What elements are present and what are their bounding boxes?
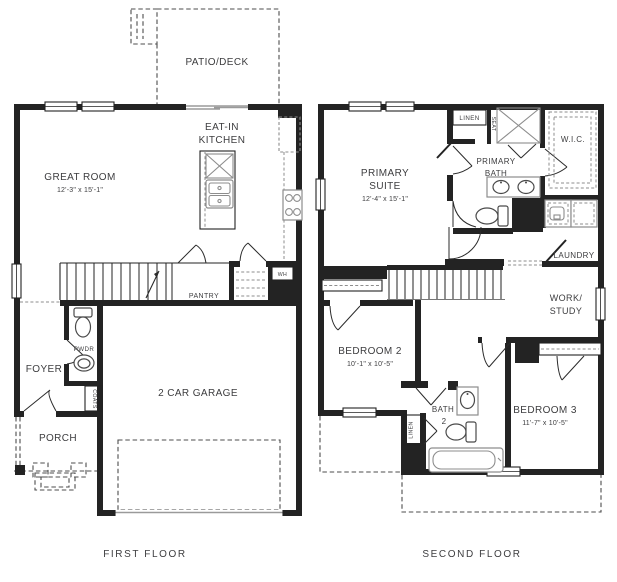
porch-outline (14, 417, 97, 490)
bedroom2-label: BEDROOM 2 (338, 346, 402, 357)
double-vanity-icon (487, 177, 540, 197)
floor-plan-drawing: PATIO/DECK EAT-IN KITCHEN GREAT ROOM 12'… (0, 0, 617, 582)
stairwell-open-rail (322, 280, 382, 291)
primary-bath-label-line1: PRIMARY (476, 157, 515, 166)
work-study-label-line2: STUDY (550, 306, 583, 316)
shower-icon (497, 108, 540, 158)
great-room-label: GREAT ROOM (44, 172, 115, 183)
eat-in-kitchen-label-line2: KITCHEN (199, 135, 246, 146)
sink-icon (74, 355, 94, 371)
bedroom2-dimensions: 10'-1" x 10'-5" (347, 361, 393, 368)
kitchen-sink-icon (206, 180, 233, 208)
garage-parking-outline (115, 440, 283, 516)
coats-label: COATS (91, 389, 97, 409)
porch-label: PORCH (39, 433, 77, 444)
bedroom3-closet-shelf (539, 343, 601, 355)
wic-label: W.I.C. (561, 135, 585, 144)
eat-in-kitchen-label-line1: EAT-IN (205, 122, 239, 133)
powder-room-label: PWDR (74, 346, 95, 353)
stove-icon (283, 190, 302, 220)
primary-suite-label-line1: PRIMARY (361, 168, 409, 179)
dryer-icon (571, 200, 597, 227)
second-floor-plan: PRIMARY SUITE 12'-4" x 15'-1" LINEN SEAT… (316, 102, 605, 560)
first-floor-windows (12, 102, 114, 298)
toilet-icon (476, 206, 508, 226)
garage-label: 2 CAR GARAGE (158, 388, 238, 399)
linen-hall-label: LINEN (409, 421, 415, 438)
pantry-label: PANTRY (189, 293, 219, 300)
sink-icon (457, 387, 478, 415)
first-floor-title: FIRST FLOOR (103, 549, 187, 560)
laundry-fixtures (545, 200, 597, 227)
bathtub-icon (429, 448, 503, 472)
toilet-icon (446, 422, 476, 442)
foyer-label: FOYER (26, 364, 62, 375)
primary-bath-label-line2: BATH (485, 169, 507, 178)
bedroom3-dimensions: 11'-7" x 10'-5" (522, 420, 568, 427)
wic-shelving (549, 112, 596, 188)
bath2-fixtures (429, 387, 503, 472)
work-study-label-line1: WORK/ (550, 293, 583, 303)
bath2-label-line2: 2 (442, 417, 447, 426)
floor-plan-page: PATIO/DECK EAT-IN KITCHEN GREAT ROOM 12'… (0, 0, 617, 582)
linen-upper-label: LINEN (459, 115, 479, 122)
bath2-label-line1: BATH (432, 405, 454, 414)
great-room-dimensions: 12'-3" x 15'-1" (57, 187, 103, 194)
washer-icon (545, 200, 571, 227)
powder-room-fixtures (74, 308, 94, 371)
patio-deck-label: PATIO/DECK (185, 57, 248, 68)
first-floor-walls (14, 104, 302, 516)
kitchen-island (200, 151, 235, 229)
first-floor-plan: PATIO/DECK EAT-IN KITCHEN GREAT ROOM 12'… (12, 9, 302, 560)
bedroom3-label: BEDROOM 3 (513, 405, 577, 416)
water-heater-label: WH (278, 272, 287, 278)
laundry-label: LAUNDRY (554, 251, 595, 260)
primary-suite-dimensions: 12'-4" x 15'-1" (362, 196, 408, 203)
primary-suite-label-line2: SUITE (369, 181, 400, 192)
second-floor-title: SECOND FLOOR (422, 549, 521, 560)
seat-label: SEAT (490, 117, 496, 132)
dishwasher-icon (206, 154, 233, 178)
toilet-icon (74, 308, 92, 337)
